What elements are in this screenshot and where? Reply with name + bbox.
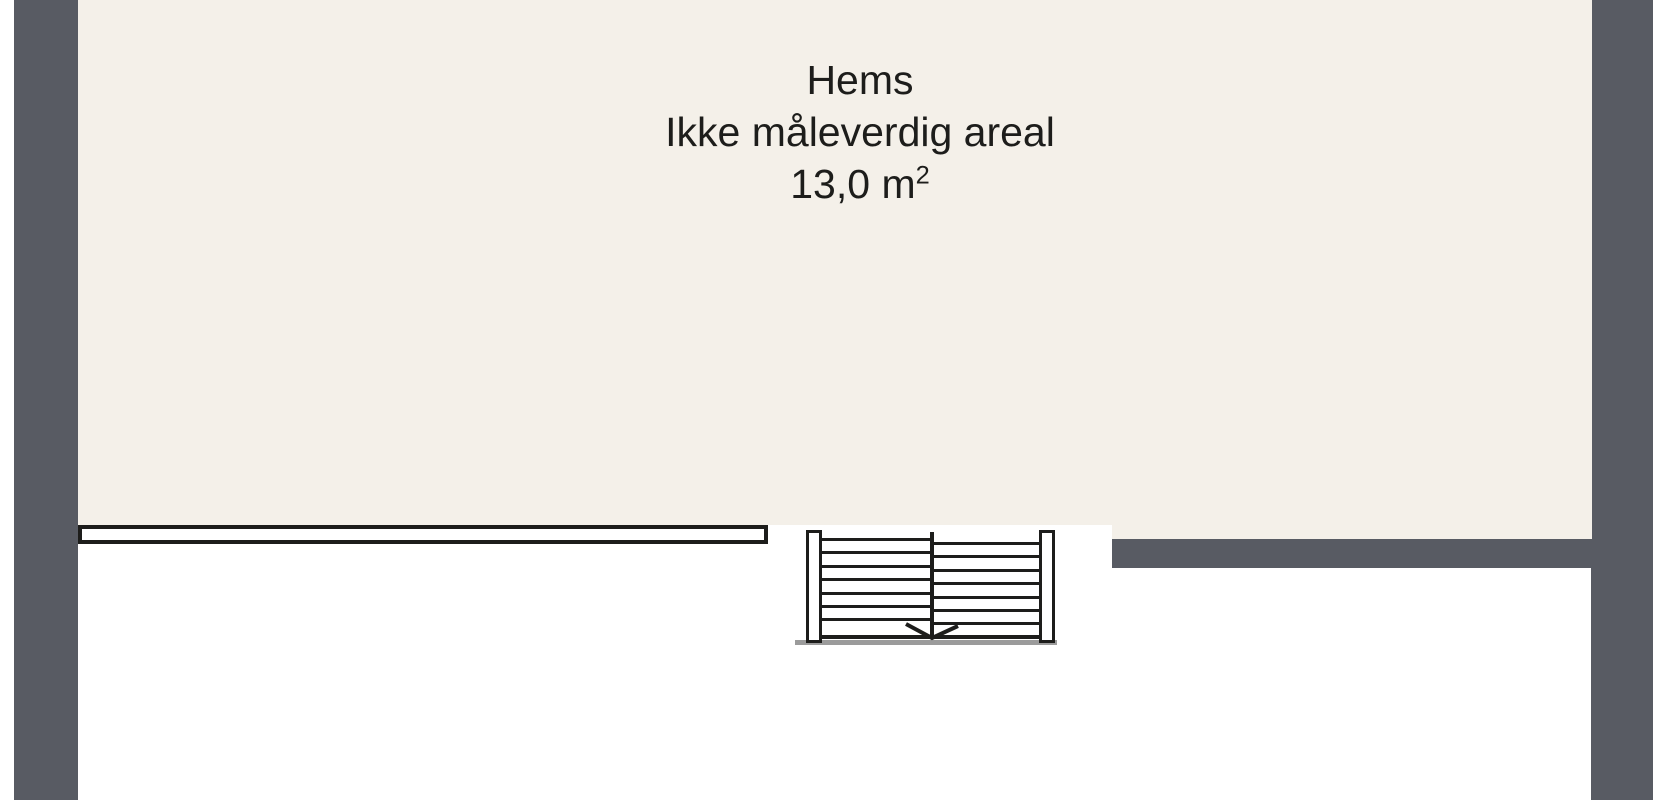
loft-floor-area-right [1112,525,1592,539]
wall-left [14,0,78,800]
stair-tread [822,592,930,595]
room-area-exponent: 2 [916,161,930,189]
railing [78,525,768,544]
room-area: 13,0 m2 [460,158,1260,210]
floorplan-canvas: Hems Ikke måleverdig areal 13,0 m2 [0,0,1670,800]
wall-inner-right [1112,539,1592,568]
stair-tread [934,555,1039,558]
stair-tread [934,582,1039,585]
room-note: Ikke måleverdig areal [460,106,1260,158]
stair-tread [822,551,930,554]
stair-post-right [1039,530,1055,643]
stair-post-left [806,530,822,643]
stair-tread [822,565,930,568]
room-name: Hems [460,54,1260,106]
stair-down-arrow-icon [900,618,964,642]
wall-right [1591,0,1653,800]
stair-tread [934,542,1039,545]
stair-tread [934,609,1039,612]
stair-tread [822,538,930,541]
stair-tread [822,578,930,581]
room-area-value: 13,0 m [790,161,915,207]
stair-tread [934,569,1039,572]
stair-tread [822,605,930,608]
stair-tread [934,596,1039,599]
staircase [806,530,1055,645]
room-label: Hems Ikke måleverdig areal 13,0 m2 [460,54,1260,210]
